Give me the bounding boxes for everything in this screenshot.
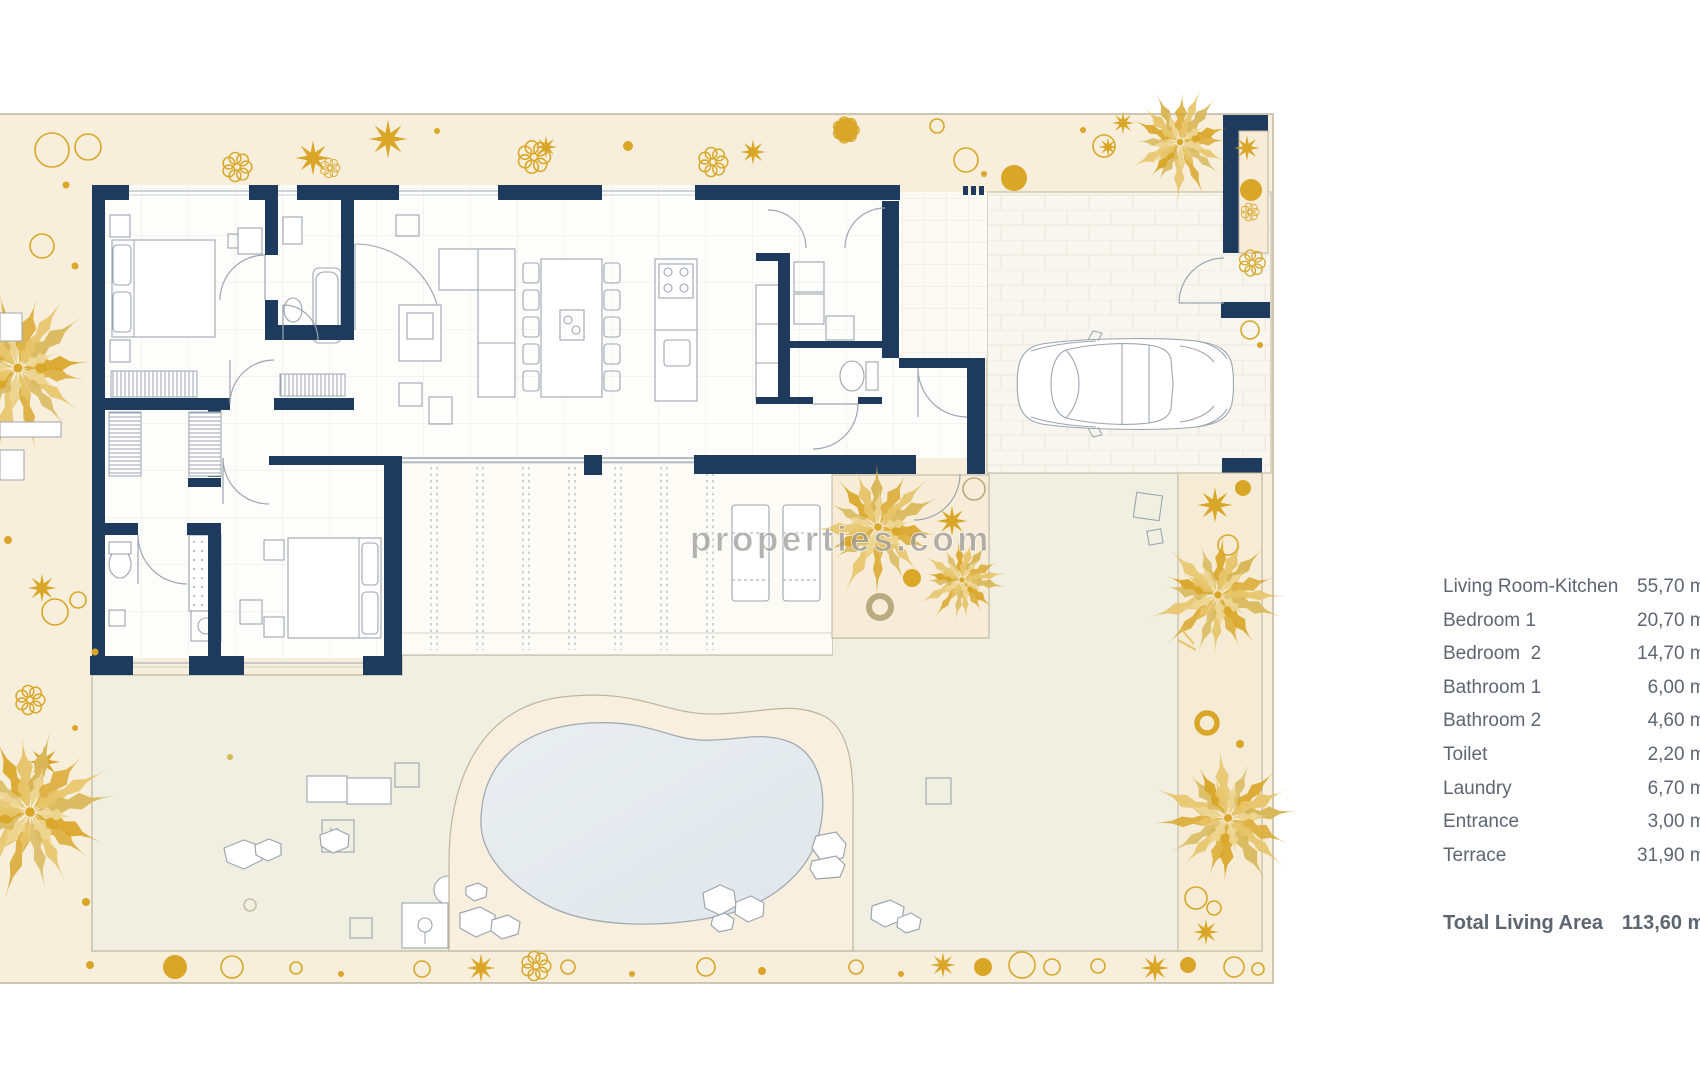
svg-text:Bedroom 1: Bedroom 1 [1443,610,1536,631]
svg-text:Bathroom 1: Bathroom 1 [1443,677,1541,698]
svg-text:113,60 m²: 113,60 m² [1622,912,1700,934]
svg-text:properties.com: properties.com [690,520,992,559]
svg-text:Bedroom 2: Bedroom 2 [1443,643,1541,664]
svg-text:Terrace: Terrace [1443,845,1506,866]
svg-text:6,70 m²: 6,70 m² [1648,778,1700,799]
svg-text:55,70 m²: 55,70 m² [1637,576,1700,597]
svg-text:Entrance: Entrance [1443,811,1519,832]
svg-text:2,20 m²: 2,20 m² [1648,744,1700,765]
svg-text:Living Room-Kitchen: Living Room-Kitchen [1443,576,1618,597]
svg-text:31,90 m²: 31,90 m² [1637,845,1700,866]
svg-text:Total Living Area: Total Living Area [1443,912,1604,934]
svg-text:Bathroom 2: Bathroom 2 [1443,710,1541,731]
svg-text:6,00 m²: 6,00 m² [1648,677,1700,698]
svg-text:3,00 m²: 3,00 m² [1648,811,1700,832]
svg-text:Toilet: Toilet [1443,744,1488,765]
svg-text:20,70 m²: 20,70 m² [1637,610,1700,631]
svg-text:4,60 m²: 4,60 m² [1648,710,1700,731]
svg-text:Laundry: Laundry [1443,778,1512,799]
svg-text:14,70 m²: 14,70 m² [1637,643,1700,664]
